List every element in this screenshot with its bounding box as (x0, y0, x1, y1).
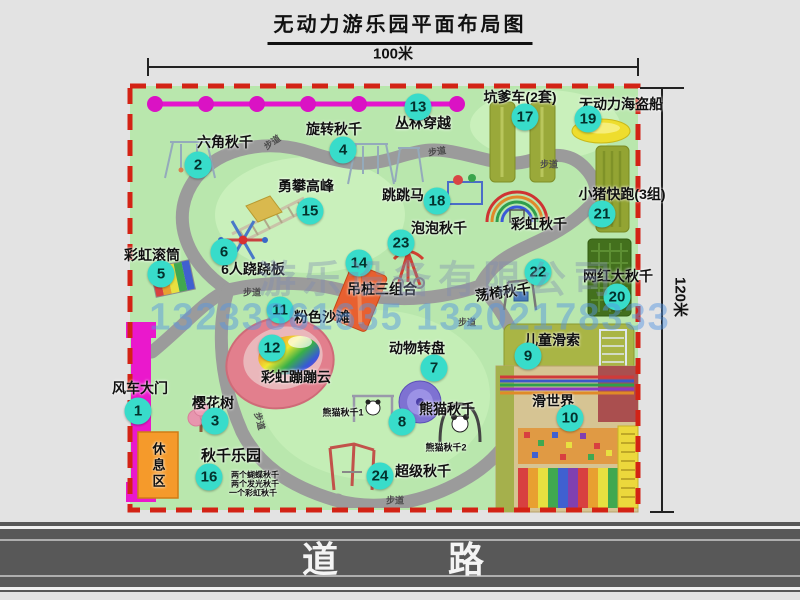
labels-overlay: 风车大门1六角秋千2樱花树3旋转秋千4彩虹滚筒56人跷跷板6动物转盘7熊猫秋千8… (0, 0, 800, 600)
path-label-4: 步道 (243, 286, 261, 299)
label-super-swing: 超级秋千 (395, 461, 451, 481)
path-label-5: 步道 (251, 411, 268, 432)
badge-jumping-horse: 18 (424, 188, 451, 215)
badge-swing-park: 16 (196, 464, 223, 491)
label-swing-chair: 荡椅秋千 (474, 278, 532, 306)
badge-hexagon-swing: 2 (185, 152, 212, 179)
badge-bubble-swing: 23 (388, 230, 415, 257)
label-panda-swing-2: 熊猫秋千2 (425, 441, 466, 454)
path-label-7: 步道 (458, 316, 476, 329)
badge-hanging-pile-combo: 14 (346, 250, 373, 277)
path-label-1: 步道 (261, 132, 283, 153)
badge-panda-swing: 8 (389, 409, 416, 436)
badge-rainbow-bounce-cloud: 12 (259, 335, 286, 362)
label-panda-swing-1: 熊猫秋千1 (322, 406, 363, 419)
badge-rotating-swing: 4 (330, 137, 357, 164)
label-bubble-swing: 泡泡秋千 (411, 218, 467, 238)
badge-animal-turntable: 7 (421, 355, 448, 382)
label-rainbow-bounce-cloud: 彩虹蹦蹦云 (261, 367, 331, 387)
badge-brave-climb: 15 (297, 198, 324, 225)
label-swing-park-note-3: 一个彩虹秋千 (229, 488, 277, 499)
label-panda-swing: 熊猫秋千 (419, 399, 475, 419)
badge-six-person-seesaw: 6 (211, 239, 238, 266)
badge-slide-world: 10 (557, 405, 584, 432)
badge-rainbow-roller: 5 (148, 261, 175, 288)
label-pink-beach: 粉色沙滩 (294, 307, 350, 327)
label-piggy-run: 小猪快跑(3组) (578, 184, 665, 204)
path-label-2: 步道 (427, 143, 447, 158)
label-swing-park: 秋千乐园 (201, 445, 261, 466)
label-windmill-gate: 风车大门 (112, 378, 168, 398)
badge-pink-beach: 11 (267, 297, 294, 324)
path-label-6: 步道 (386, 494, 404, 507)
badge-super-swing: 24 (367, 463, 394, 490)
badge-pit-cart: 17 (512, 104, 539, 131)
path-label-3: 步道 (540, 158, 558, 171)
badge-piggy-run: 21 (589, 201, 616, 228)
label-rotating-swing: 旋转秋千 (306, 119, 362, 139)
badge-pirate-ship: 19 (575, 106, 602, 133)
label-rainbow-roller: 彩虹滚筒 (124, 245, 180, 265)
label-jumping-horse: 跳跳马 (382, 185, 424, 205)
badge-kids-zipline: 9 (515, 343, 542, 370)
badge-swing-chair: 22 (525, 259, 552, 286)
badge-windmill-gate: 1 (125, 398, 152, 425)
label-hexagon-swing: 六角秋千 (197, 132, 253, 152)
label-hanging-pile-combo: 吊桩三组合 (347, 279, 417, 299)
badge-big-swing: 20 (604, 284, 631, 311)
label-brave-climb: 勇攀高峰 (278, 176, 334, 196)
label-rest-area: 休息区 (149, 442, 168, 490)
badge-jungle-crossing: 13 (405, 94, 432, 121)
badge-cherry-tree: 3 (202, 408, 229, 435)
label-rainbow-swing: 彩虹秋千 (511, 214, 567, 234)
screenshot-root: 无动力游乐园平面布局图 100米 120米 (0, 0, 800, 600)
